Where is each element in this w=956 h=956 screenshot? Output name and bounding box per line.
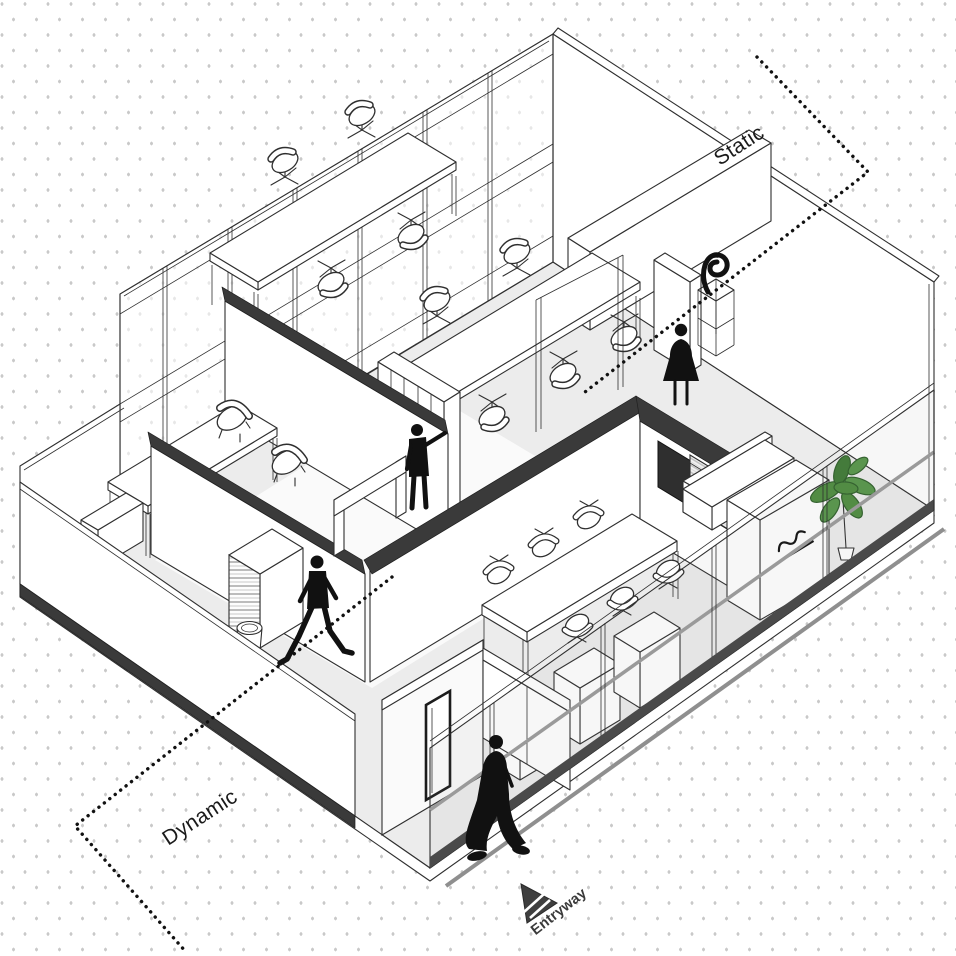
dot-grid-background: Static Dynamic Entryway (0, 0, 956, 956)
axonometric-office-diagram (0, 0, 956, 956)
